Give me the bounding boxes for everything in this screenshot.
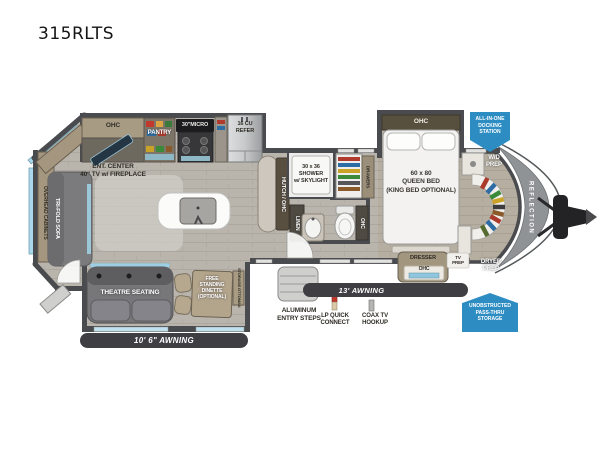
- awning-13ft-label: 13' AWNING: [339, 286, 385, 295]
- awning-13ft-bar: 13' AWNING: [303, 283, 468, 297]
- toilet-ohc-cabinet: [356, 206, 368, 240]
- refrigerator: [228, 115, 262, 162]
- pillow: [422, 133, 455, 150]
- dresser: [398, 252, 448, 282]
- counter-cabinet: [215, 117, 227, 162]
- bath-sink: [302, 214, 324, 241]
- shower: [288, 152, 334, 198]
- range-and-microwave: [176, 119, 214, 162]
- hutch: [258, 156, 289, 232]
- tri-fold-sofa: [48, 172, 92, 266]
- bedroom-cabinet: [458, 226, 471, 254]
- awning-10ft-bar: 10' 6" AWNING: [80, 333, 248, 348]
- floorplan-page: 315RLTS OHC ENT. CENTER 40" TV w/ FIREPL…: [0, 0, 600, 450]
- entertainment-center: [82, 118, 144, 167]
- drawers-cabinet: [362, 156, 374, 198]
- floorplan-drawing: [0, 0, 600, 450]
- coax-tv-hookup-icon: [369, 300, 374, 311]
- storage-ottoman-cabinet: [233, 271, 244, 305]
- pantry: [144, 118, 175, 162]
- kitchen-island: [158, 193, 230, 229]
- toilet: [335, 206, 355, 239]
- awning-10ft-label: 10' 6" AWNING: [134, 336, 194, 345]
- theatre-seating: [87, 267, 173, 323]
- tv-prep-panel: [447, 253, 469, 268]
- model-number: 315RLTS: [38, 24, 114, 44]
- nightstand: [462, 153, 484, 175]
- pillow: [387, 133, 420, 150]
- bedroom-closet: [336, 154, 374, 198]
- queen-bed: [382, 115, 460, 253]
